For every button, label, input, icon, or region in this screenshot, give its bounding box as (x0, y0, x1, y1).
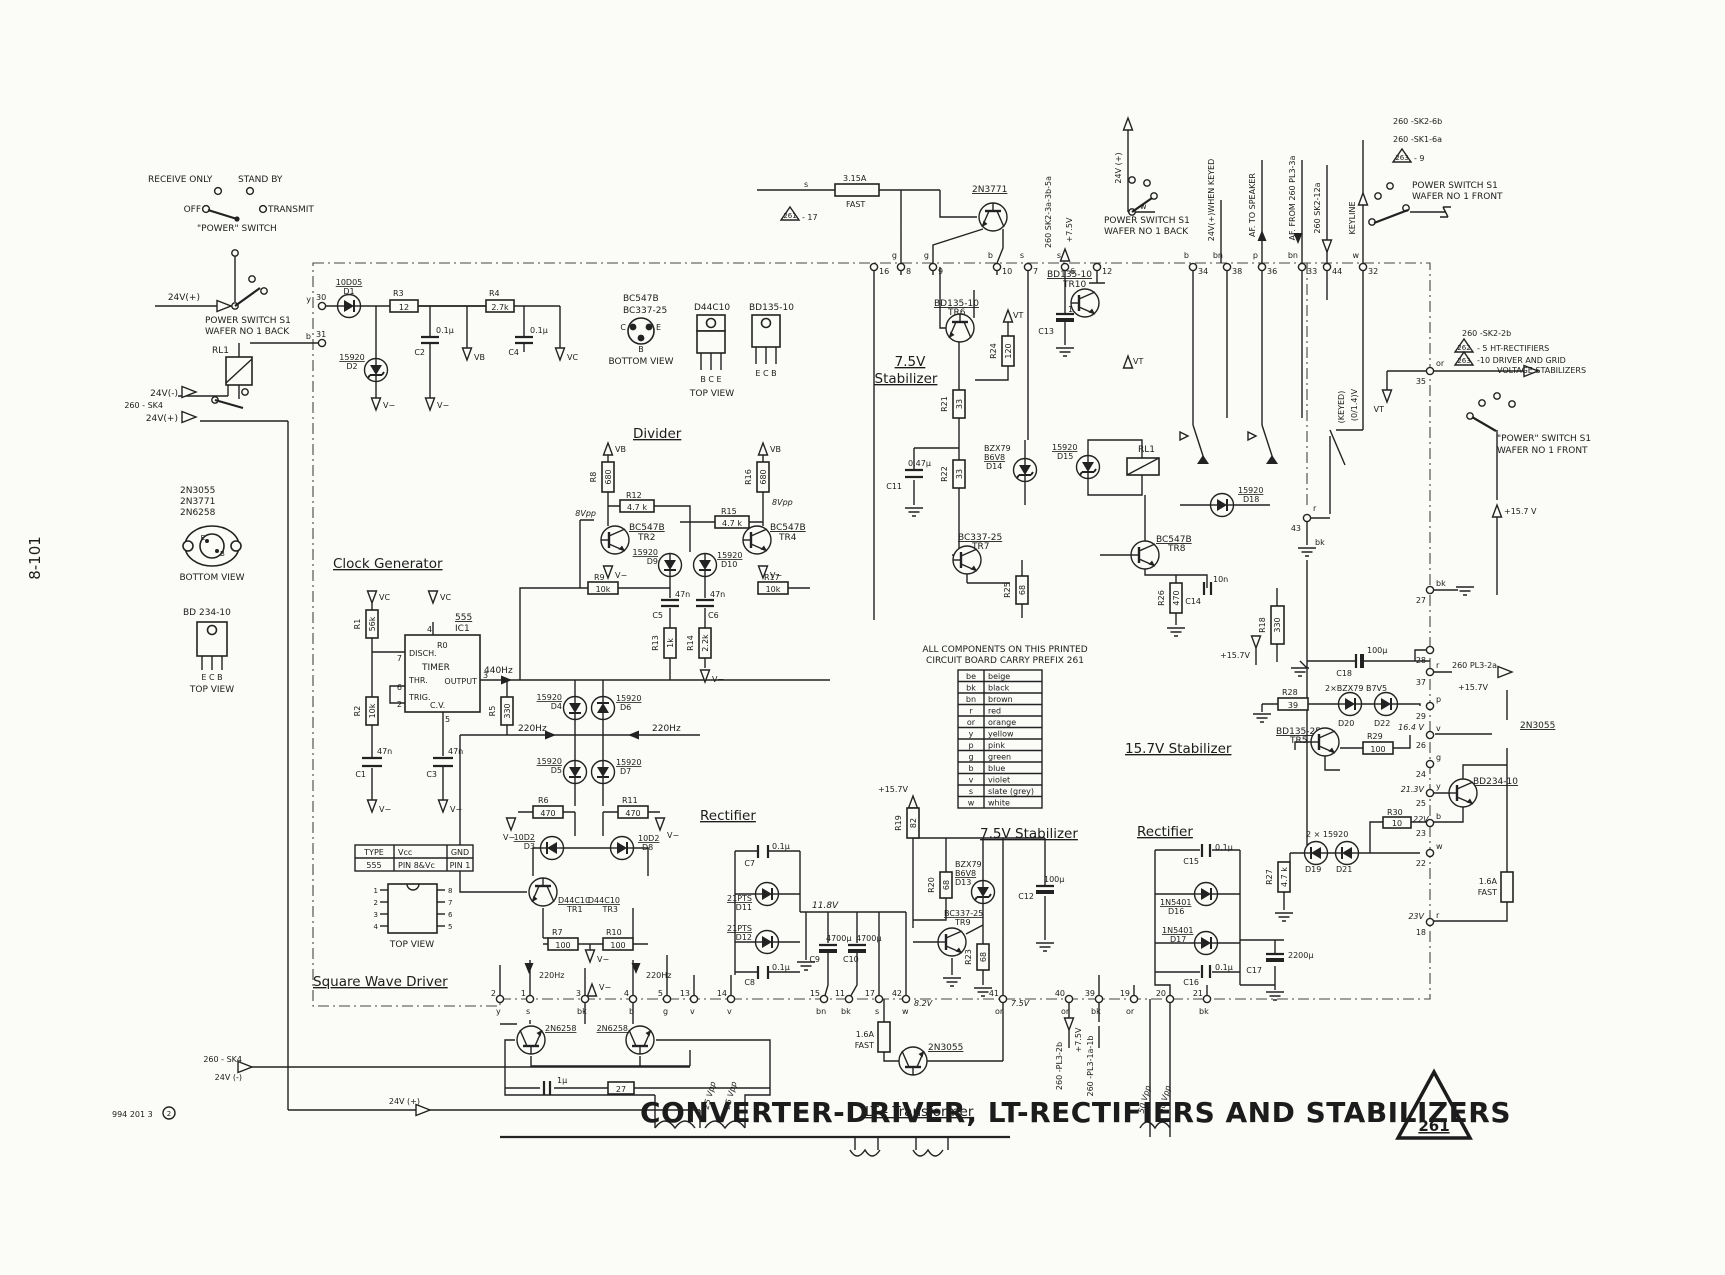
resistor-R18: R18 330 (1258, 588, 1284, 662)
label-24v-plus: 24V(+) (168, 293, 200, 303)
svg-text:263: 263 (1457, 357, 1470, 365)
svg-text:C10: C10 (843, 955, 859, 964)
svg-text:0.1μ: 0.1μ (530, 326, 548, 335)
label-220hz: 220Hz (518, 724, 547, 734)
svg-text:23: 23 (1416, 829, 1426, 838)
pin43-color: r (1313, 504, 1317, 513)
wire-color-w: w (1140, 202, 1147, 211)
svg-text:E: E (201, 534, 205, 542)
svg-text:s: s (526, 1007, 530, 1016)
board-pins-right: 27bk 28 37r 29p 26v 24g 25y 23b 22w 18r (1416, 579, 1446, 937)
svg-text:42: 42 (892, 989, 902, 998)
label-d10: D10 (721, 560, 737, 569)
label-keyline: KEYLINE (1348, 201, 1357, 234)
svg-text:470: 470 (625, 809, 640, 818)
pin35-num: 35 (1416, 377, 1426, 386)
note-line2: CIRCUIT BOARD CARRY PREFIX 261 (926, 656, 1084, 666)
svg-text:6: 6 (1070, 267, 1075, 276)
svg-text:E C B: E C B (755, 369, 776, 378)
svg-text:261: 261 (783, 212, 796, 220)
label-d3-type: 10D2 (514, 833, 535, 842)
svg-text:C13: C13 (1038, 327, 1054, 336)
svg-text:R20: R20 (927, 877, 936, 893)
svg-text:44: 44 (1332, 267, 1342, 276)
svg-text:2200μ: 2200μ (1288, 951, 1313, 960)
svg-text:green: green (988, 753, 1011, 762)
svg-text:PIN 1: PIN 1 (450, 861, 471, 870)
svg-text:s: s (1020, 251, 1024, 260)
resistor-R6: R6 470 (533, 796, 563, 818)
label-d9: D9 (647, 557, 658, 566)
svg-text:- 5 HT-RECTIFIERS: - 5 HT-RECTIFIERS (1477, 344, 1549, 353)
svg-text:4.7 k: 4.7 k (1280, 867, 1289, 887)
label-d11: D11 (736, 903, 752, 912)
svg-text:20: 20 (1156, 989, 1166, 998)
label-d5: D5 (551, 766, 562, 775)
svg-text:slate (grey): slate (grey) (988, 787, 1034, 796)
capacitor-C1: 47nC1 (355, 747, 392, 779)
svg-text:R7: R7 (552, 928, 563, 937)
svg-text:black: black (988, 684, 1010, 693)
capacitor-C18: 100μC18 (1336, 646, 1387, 678)
svg-text:R2: R2 (353, 706, 362, 717)
resistor-R3: R3 12 (390, 289, 418, 312)
svg-text:R14: R14 (686, 635, 695, 651)
capacitor-C11: 0,47μC11 (886, 459, 931, 491)
svg-text:v: v (969, 776, 974, 785)
svg-text:6: 6 (448, 911, 453, 919)
label-vminus: V− (597, 955, 609, 964)
svg-text:R22: R22 (940, 466, 949, 482)
svg-text:B C E: B C E (700, 375, 721, 384)
svg-text:R23: R23 (964, 949, 973, 965)
pin30-num: 30 (316, 293, 326, 302)
label-220hz: 220Hz (539, 971, 564, 980)
svg-text:39: 39 (1085, 989, 1095, 998)
label-7v5: 7.5V (1011, 999, 1030, 1008)
label-bottom-view2: BOTTOM VIEW (179, 573, 244, 583)
svg-text:33: 33 (955, 399, 964, 409)
svg-text:bn: bn (816, 1007, 826, 1016)
label-d4-type: 15920 (537, 693, 562, 702)
label-d13-type2: B6V8 (955, 869, 976, 878)
svg-text:R30: R30 (1387, 808, 1403, 817)
label-d7: D7 (620, 767, 631, 776)
label-2n3055: 2N3055 (180, 486, 215, 496)
ref-263-9: 263 - 9 (1393, 149, 1425, 163)
svg-text:brown: brown (988, 695, 1013, 704)
label-d14-type2: B6V8 (984, 453, 1005, 462)
svg-text:R8: R8 (589, 472, 598, 483)
label-af-speaker: AF. TO SPEAKER (1248, 173, 1257, 237)
stab-7v5-right: 7.5V Stabilizer +15.7V R19 82 R20 68 BZX… (878, 785, 1078, 996)
capacitor-C6: 47nC6 (696, 590, 725, 620)
fuse-1.6a-right: 1.6AFAST (1478, 872, 1513, 902)
label-2n3771: 2N3771 (972, 185, 1007, 195)
capacitor-C4: 0.1μ C4 (508, 326, 548, 357)
svg-text:B: B (638, 345, 644, 354)
svg-text:47n: 47n (448, 747, 463, 756)
svg-text:C17: C17 (1246, 966, 1262, 975)
svg-text:36: 36 (1267, 267, 1277, 276)
label-transmit: TRANSMIT (267, 205, 314, 215)
label-d8: D8 (642, 843, 653, 852)
svg-text:R3: R3 (393, 289, 404, 298)
svg-text:0.1μ: 0.1μ (772, 963, 790, 972)
svg-text:7: 7 (448, 899, 452, 907)
label-d16: D16 (1168, 907, 1184, 916)
divider: Divider VB VB R8 680 R16 680 R12 4.7 k R… (518, 426, 1284, 784)
capacitor-C15: 0.1μC15 (1183, 843, 1233, 866)
to126-package: E C B (752, 315, 780, 378)
label-11v8: 11.8V (812, 901, 839, 911)
svg-text:1: 1 (374, 887, 378, 895)
svg-text:p: p (1436, 695, 1441, 704)
label-d10-type: 15920 (717, 551, 742, 560)
svg-text:R29: R29 (1367, 732, 1383, 741)
schematic-page: RECEIVE ONLY STAND BY OFF TRANSMIT "POWE… (0, 0, 1725, 1275)
svg-text:680: 680 (759, 469, 768, 484)
label-tr4-type: BC547B (770, 523, 806, 533)
label-d12: D12 (736, 933, 752, 942)
resistor-R21: R21 33 (940, 390, 965, 418)
title-rectifier: Rectifier (700, 808, 756, 824)
svg-text:13: 13 (680, 989, 690, 998)
pin31-num: 31 (316, 330, 326, 339)
ic-555-timer: 555 IC1 4 R0 DISCH. 7 TIMER THR. OUTPUT … (397, 613, 488, 724)
label-d13-type1: BZX79 (955, 860, 982, 869)
svg-text:3: 3 (374, 911, 378, 919)
svg-text:100μ: 100μ (1044, 875, 1064, 884)
label-d12-type: 21PTS (727, 924, 752, 933)
resistor-R10: R10 100 (603, 928, 633, 950)
svg-text:C.V.: C.V. (430, 701, 445, 710)
relay-keying: BD135-10 TR10 VT 15920 D15 RL1 BC547B TR… (1047, 270, 1359, 636)
label-top-view2: TOP VIEW (189, 685, 234, 695)
svg-text:C2: C2 (414, 348, 425, 357)
svg-text:15: 15 (810, 989, 820, 998)
label-vminus: V− (599, 983, 611, 992)
label-220hz: 220Hz (652, 724, 681, 734)
capacitor-C17: 2200μC17 (1246, 951, 1313, 975)
svg-text:C16: C16 (1183, 978, 1199, 987)
top-right: 24V (+) w POWER SWITCH S1 WAFER NO 1 BAC… (1104, 117, 1503, 252)
label-rl1: RL1 (212, 346, 229, 356)
svg-text:g: g (924, 251, 929, 260)
pin43-color2: bk (1315, 538, 1325, 547)
svg-text:y: y (1436, 782, 1441, 791)
svg-text:FAST: FAST (855, 1041, 874, 1050)
svg-text:B: B (220, 550, 225, 558)
svg-text:1.6A: 1.6A (1479, 877, 1498, 886)
doc-number: 994 201 3 (112, 1110, 153, 1119)
label-16v4: 16.4 V (1398, 723, 1424, 732)
svg-text:C11: C11 (886, 482, 902, 491)
label-vminus: V− (437, 401, 449, 410)
svg-text:68: 68 (942, 880, 951, 890)
svg-text:b: b (1436, 812, 1441, 821)
svg-text:330: 330 (503, 703, 512, 718)
label-2n6258: 2N6258 (180, 508, 216, 518)
svg-text:10k: 10k (368, 703, 377, 718)
svg-text:R13: R13 (651, 635, 660, 651)
keying-contacts (1180, 425, 1345, 465)
svg-text:VOLTAGE STABILIZERS: VOLTAGE STABILIZERS (1497, 366, 1586, 375)
svg-text:p: p (1253, 251, 1258, 260)
pin30-color: y (306, 295, 311, 304)
capacitor-C2: 0.1μ C2 (414, 326, 454, 357)
svg-text:v: v (1436, 724, 1441, 733)
svg-text:C8: C8 (744, 978, 755, 987)
svg-text:8: 8 (448, 887, 452, 895)
label-tr3: TR3 (601, 905, 618, 914)
label-tr9: TR9 (954, 918, 971, 927)
title-15v7: 15.7V Stabilizer (1125, 741, 1232, 757)
svg-text:R18: R18 (1258, 617, 1267, 633)
svg-text:r: r (1436, 661, 1440, 670)
svg-text:R17: R17 (764, 573, 780, 582)
svg-text:g: g (1436, 753, 1441, 762)
label-d16-type: 1N5401 (1160, 898, 1191, 907)
svg-text:g: g (968, 753, 973, 762)
resistor-R11: R11 470 (618, 796, 648, 818)
svg-text:C3: C3 (426, 770, 437, 779)
svg-text:R11: R11 (622, 796, 638, 805)
label-receive-only: RECEIVE ONLY (148, 175, 213, 185)
svg-text:680: 680 (604, 469, 613, 484)
svg-text:100μ: 100μ (1367, 646, 1387, 655)
svg-text:C6: C6 (708, 611, 719, 620)
label-psw-front: POWER SWITCH S1 (1412, 181, 1498, 191)
ref-261-17: 261 - 17 (781, 207, 818, 222)
svg-text:261: 261 (1418, 1117, 1449, 1135)
label-d14: D14 (986, 462, 1002, 471)
resistor-R1: R1 56k (353, 610, 378, 638)
label-21v3: 21.3V (1401, 785, 1425, 794)
label-d3: D3 (524, 842, 535, 851)
svg-text:orange: orange (988, 718, 1016, 727)
svg-text:330: 330 (1273, 617, 1282, 632)
label-d13: D13 (955, 878, 971, 887)
svg-text:v: v (727, 1007, 732, 1016)
svg-text:4: 4 (374, 923, 379, 931)
label-p15v7-2: +15.7V (1220, 651, 1251, 660)
svg-text:7: 7 (1033, 267, 1038, 276)
label-vminus: V− (712, 675, 724, 684)
label-tr2: TR2 (637, 533, 655, 543)
label-d20-d22-type: 2×BZX79 B7V5 (1325, 684, 1387, 693)
label-d20: D20 (1338, 719, 1354, 728)
label-wafer-back2: WAFER NO 1 BACK (1104, 227, 1189, 237)
svg-text:39: 39 (1288, 701, 1298, 710)
label-d6-type: 15920 (616, 694, 641, 703)
label-2n6258: 2N6258 (597, 1024, 628, 1033)
svg-text:red: red (988, 707, 1001, 716)
svg-text:s: s (969, 787, 973, 796)
svg-text:s: s (875, 1007, 879, 1016)
resistor-R27: R27 4.7 k (1265, 862, 1290, 892)
resistor-R13: R13 1k (651, 628, 676, 658)
label-keyed: (KEYED) (1337, 391, 1346, 424)
svg-text:9: 9 (938, 267, 943, 276)
capacitor-C7: 0.1μC7 (744, 842, 790, 868)
resistor-R8: R8 680 (589, 462, 614, 492)
svg-text:R21: R21 (940, 396, 949, 412)
svg-text:1k: 1k (666, 638, 675, 648)
label-top-view: TOP VIEW (689, 389, 734, 399)
label-vc: VC (379, 593, 390, 602)
svg-text:5: 5 (445, 715, 450, 724)
svg-text:TOP VIEW: TOP VIEW (389, 940, 434, 950)
svg-text:40: 40 (1055, 989, 1065, 998)
svg-text:0.1μ: 0.1μ (1215, 963, 1233, 972)
label-pl3-2b: 260 -PL3-2b (1055, 1042, 1064, 1090)
svg-text:FAST: FAST (846, 200, 865, 209)
label-power-switch: "POWER" SWITCH (197, 224, 277, 234)
label-tr8: TR8 (1167, 544, 1186, 554)
resistor-R24: R24 120 (989, 336, 1014, 366)
svg-text:w: w (1352, 251, 1359, 260)
label-d18-type: 15920 (1238, 486, 1263, 495)
svg-text:41: 41 (989, 989, 999, 998)
svg-text:PIN 8&Vc: PIN 8&Vc (398, 861, 435, 870)
svg-text:R15: R15 (721, 507, 737, 516)
svg-text:11: 11 (835, 989, 845, 998)
label-bottom-view: BOTTOM VIEW (608, 357, 673, 367)
label-d4: D4 (551, 702, 562, 711)
svg-text:21: 21 (1193, 989, 1203, 998)
svg-text:bk: bk (1091, 1007, 1101, 1016)
label-off: OFF (184, 205, 201, 215)
svg-text:18: 18 (1416, 928, 1426, 937)
note-line1: ALL COMPONENTS ON THIS PRINTED (922, 645, 1087, 655)
svg-text:6: 6 (397, 683, 402, 692)
label-8vpp: 8Vpp (575, 509, 596, 518)
label-d18: D18 (1243, 495, 1259, 504)
relay-RL1-right (1127, 458, 1159, 475)
sheet-number: 8-101 (26, 536, 44, 580)
resistor-R22: R22 33 (940, 460, 965, 488)
label-vminus: V− (615, 571, 627, 580)
svg-text:r: r (1436, 911, 1440, 920)
label-d5-type: 15920 (537, 757, 562, 766)
svg-text:10k: 10k (596, 585, 611, 594)
svg-text:bn: bn (1288, 251, 1298, 260)
label-24v-top: 24V (+) (1114, 152, 1123, 183)
svg-text:w: w (1436, 842, 1443, 851)
title-7v5-b: Stabilizer (875, 371, 938, 387)
resistor-R25: R25 68 (1003, 576, 1028, 604)
label-wafer-front: WAFER NO 1 FRONT (1412, 192, 1503, 202)
svg-text:R28: R28 (1282, 688, 1298, 697)
label-d15: D15 (1057, 452, 1073, 461)
svg-text:b: b (629, 1007, 634, 1016)
svg-text:R5: R5 (488, 706, 497, 717)
svg-text:28: 28 (1416, 656, 1426, 665)
capacitor-C5: 47nC5 (652, 590, 690, 620)
label-psw-back2: POWER SWITCH S1 (1104, 216, 1190, 226)
svg-text:- 9: - 9 (1414, 154, 1425, 163)
svg-text:b: b (1184, 251, 1189, 260)
svg-text:IC1: IC1 (455, 624, 470, 634)
label-tr9-type: BC337-25 (944, 909, 983, 918)
svg-text:68: 68 (1018, 585, 1027, 595)
input-24v: 24V(+) POWER SWITCH S1 WAFER NO 1 BACK R… (124, 250, 290, 424)
wire-color-s: s (804, 180, 808, 189)
label-260-sk4: 260 - SK4 (124, 401, 163, 410)
label-stand-by: STAND BY (238, 175, 283, 185)
svg-text:b: b (968, 764, 973, 773)
svg-text:beige: beige (988, 672, 1010, 681)
svg-text:g: g (892, 251, 897, 260)
left-packages: 8-101 2N3055 2N3771 2N6258 EB BOTTOM VIE… (26, 486, 245, 1119)
svg-text:Vcc: Vcc (398, 848, 412, 857)
svg-text:or: or (967, 718, 976, 727)
label-tr1-type: D44C10 (558, 896, 590, 905)
svg-text:w: w (902, 1007, 909, 1016)
svg-text:38: 38 (1232, 267, 1242, 276)
svg-text:s: s (1057, 251, 1061, 260)
label-tr4: TR4 (778, 533, 797, 543)
svg-text:2: 2 (491, 989, 496, 998)
label-vminus: V− (450, 805, 462, 814)
svg-text:THR.: THR. (408, 676, 428, 685)
title-divider: Divider (633, 426, 682, 442)
svg-text:FAST: FAST (1478, 888, 1497, 897)
svg-text:bk: bk (966, 684, 976, 693)
svg-text:be: be (966, 672, 976, 681)
board-pins-bottom: 2y 1s 3bk 4b 5g 13v 14v 15bn 11bk 17s 42… (491, 989, 1211, 1097)
pin43-num: 43 (1291, 524, 1301, 533)
svg-text:E C B: E C B (201, 673, 222, 682)
label-2n6258: 2N6258 (545, 1024, 576, 1033)
label-wafer-back: WAFER NO 1 BACK (205, 327, 290, 337)
label-d19-d21-type: 2 × 15920 (1306, 830, 1348, 839)
title-rectifier2: Rectifier (1137, 824, 1193, 840)
to3-bottom-view: EB (183, 526, 241, 566)
svg-text:33: 33 (955, 469, 964, 479)
label-d6: D6 (620, 703, 631, 712)
color-legend: ALL COMPONENTS ON THIS PRINTED CIRCUIT B… (922, 645, 1087, 808)
svg-text:10n: 10n (1213, 575, 1228, 584)
label-d21: D21 (1336, 865, 1352, 874)
label-d11-type: 21PTS (727, 894, 752, 903)
svg-text:10: 10 (1392, 819, 1402, 828)
svg-text:32: 32 (1368, 267, 1378, 276)
svg-text:R19: R19 (894, 815, 903, 831)
svg-text:7: 7 (397, 654, 402, 663)
svg-text:33: 33 (1307, 267, 1317, 276)
label-vc: VC (440, 593, 451, 602)
label-sk1-6a: 260 -SK1-6a (1393, 135, 1442, 144)
capacitor-1u: 1μ (544, 1076, 567, 1095)
label-tr3-type: D44C10 (588, 896, 620, 905)
label-vt3: VT (1374, 405, 1384, 414)
svg-text:4700μ: 4700μ (856, 934, 881, 943)
label-8vpp: 8Vpp (772, 498, 793, 507)
svg-text:y: y (969, 730, 974, 739)
svg-text:27: 27 (1416, 596, 1426, 605)
svg-text:or: or (995, 1007, 1004, 1016)
title-square-wave-driver: Square Wave Driver (313, 974, 448, 990)
label-bd135: BD135-10 (749, 303, 794, 313)
label-wafer-front2: WAFER NO 1 FRONT (1497, 446, 1588, 456)
label-24v-plus2: 24V(+) (146, 414, 178, 424)
label-2n3771: 2N3771 (180, 497, 215, 507)
svg-text:R25: R25 (1003, 582, 1012, 598)
svg-text:C12: C12 (1018, 892, 1034, 901)
svg-text:1.6A: 1.6A (856, 1030, 875, 1039)
